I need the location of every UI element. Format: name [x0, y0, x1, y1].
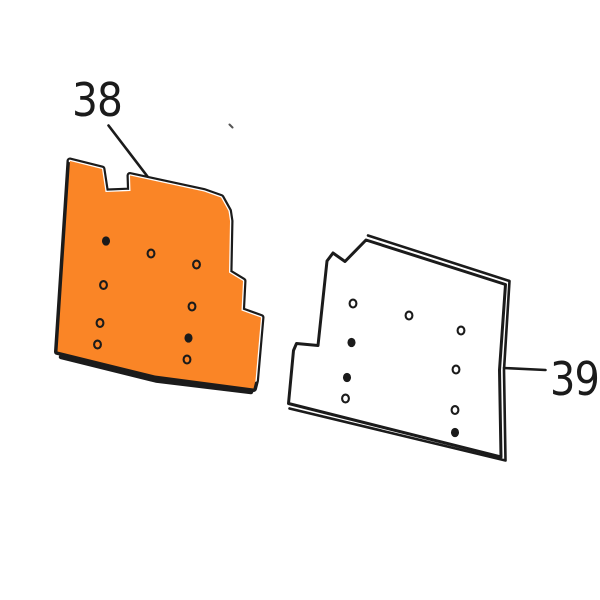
hole — [349, 339, 355, 346]
parts-diagram-canvas: 38 39 — [0, 0, 600, 600]
hole — [148, 250, 155, 258]
stray-mark — [230, 125, 233, 128]
part-39-panel — [289, 236, 510, 461]
panel-38-face — [58, 161, 262, 389]
parts-diagram: 38 39 — [0, 0, 600, 600]
part-39-label: 39 — [550, 352, 599, 406]
hole — [100, 281, 107, 289]
hole — [103, 237, 109, 244]
hole — [406, 312, 413, 320]
part-38-leader-line — [109, 126, 148, 177]
part-39-leader-line — [504, 368, 546, 370]
part-38-label: 38 — [72, 73, 122, 127]
hole — [452, 429, 458, 436]
panel-39-face — [289, 240, 506, 457]
hole — [189, 303, 196, 311]
hole — [94, 341, 101, 349]
hole — [452, 406, 459, 414]
hole — [458, 327, 465, 335]
hole — [344, 374, 350, 381]
part-38-panel — [58, 161, 262, 392]
hole — [97, 319, 104, 327]
hole — [193, 261, 200, 269]
hole — [453, 366, 460, 374]
hole — [350, 300, 357, 308]
hole — [184, 356, 191, 364]
hole — [186, 334, 192, 341]
hole — [342, 395, 349, 403]
